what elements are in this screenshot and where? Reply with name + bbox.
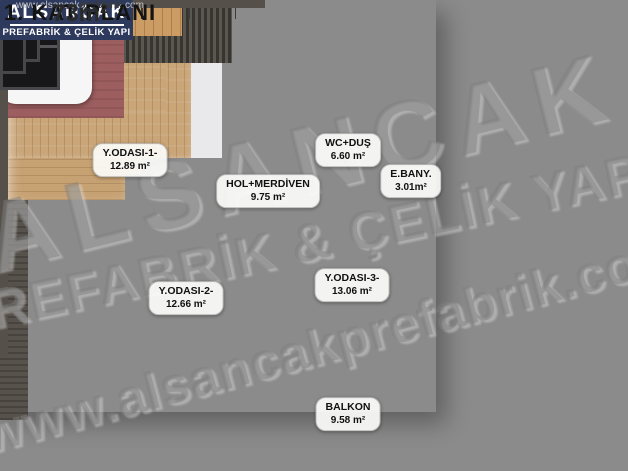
logo-subtitle: PREFABRİK & ÇELİK YAPI [2, 28, 130, 38]
plan-total-area: 73m² [0, 0, 160, 28]
room-label-wc-shower: WC+DUŞ 6.60 m² [315, 133, 381, 167]
room-label-balcony: BALKON 9.58 m² [316, 397, 381, 431]
room-name: Y.ODASI-2- [159, 285, 214, 299]
room-name: WC+DUŞ [325, 137, 371, 151]
room-name: BALKON [326, 401, 371, 415]
room-label-bedroom-2: Y.ODASI-2- 12.66 m² [149, 281, 224, 315]
room-area: 9.75 m² [226, 192, 310, 204]
room-name: Y.ODASI-1- [103, 147, 158, 161]
room-area: 13.06 m² [325, 286, 380, 298]
room-area: 3.01m² [390, 182, 431, 194]
room-area: 9.58 m² [326, 415, 371, 427]
room-area: 12.89 m² [103, 161, 158, 173]
room-name: HOL+MERDİVEN [226, 178, 310, 192]
room-name: E.BANY. [390, 168, 431, 182]
room-area: 12.66 m² [159, 299, 214, 311]
room-label-bedroom-3: Y.ODASI-3- 13.06 m² [315, 268, 390, 302]
room-area: 6.60 m² [325, 151, 371, 163]
room-name: Y.ODASI-3- [325, 272, 380, 286]
room-label-ensuite-bath: E.BANY. 3.01m² [380, 164, 441, 198]
room-label-hall-stairs: HOL+MERDİVEN 9.75 m² [216, 174, 320, 208]
floor-plan-render: ALSANCAK PREFABRİK & ÇELİK YAPI www.alsa… [0, 0, 628, 471]
room-label-bedroom-1: Y.ODASI-1- 12.89 m² [93, 143, 168, 177]
